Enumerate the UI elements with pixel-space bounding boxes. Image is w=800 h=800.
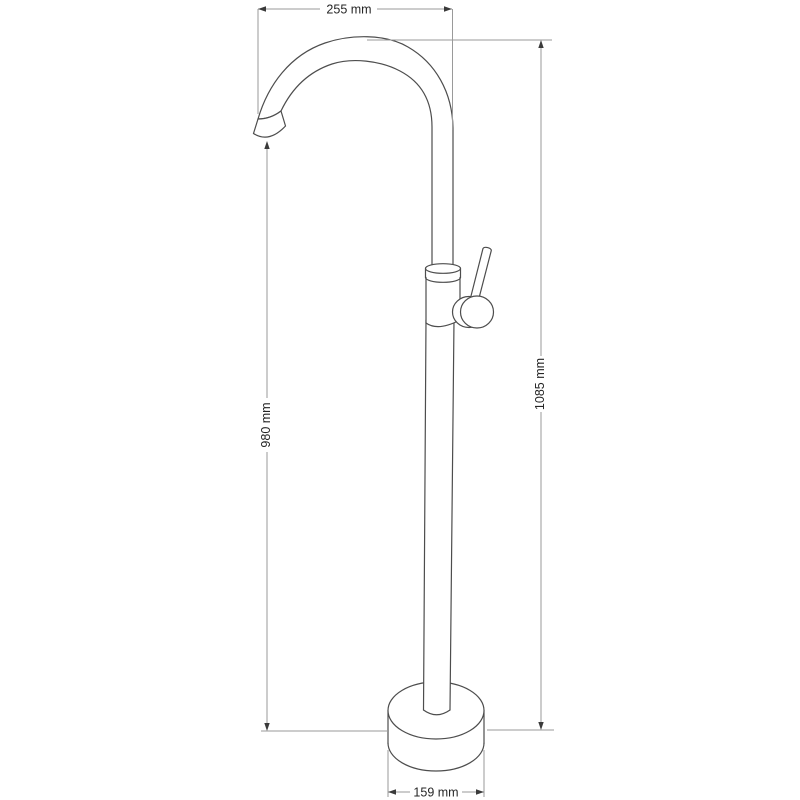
dimension-arrows <box>258 6 544 794</box>
arrow-up-icon <box>264 141 269 149</box>
dimension-labels: 255 mm 980 mm 1085 mm 159 mm <box>259 3 547 800</box>
dim-label-base-diameter: 159 mm <box>413 786 458 800</box>
dim-label-total-height: 1085 mm <box>533 358 547 410</box>
faucet-spout <box>254 37 454 268</box>
arrow-right-icon <box>444 6 452 11</box>
base-bottom-arc <box>388 743 484 771</box>
dimension-spout-height <box>261 149 388 731</box>
faucet-dimension-drawing: 255 mm 980 mm 1085 mm 159 mm <box>0 0 800 800</box>
arrow-down-icon <box>538 722 543 730</box>
dimension-lines <box>258 9 554 797</box>
arrow-down-icon <box>264 723 269 731</box>
arrow-up-icon <box>538 40 543 48</box>
dim-label-spout-height: 980 mm <box>259 402 273 447</box>
arrow-right-icon <box>476 789 484 794</box>
spout-tube <box>258 37 453 268</box>
mixer-top-flange <box>426 264 461 274</box>
arrow-left-icon <box>388 789 396 794</box>
dim-label-top-width: 255 mm <box>326 3 371 17</box>
handle-knob-face <box>461 296 494 328</box>
arrow-left-icon <box>258 6 266 11</box>
dimension-total-height <box>367 40 554 730</box>
drawing-canvas: 255 mm 980 mm 1085 mm 159 mm <box>0 0 800 800</box>
lower-pipe-fill <box>424 320 455 715</box>
handle-lever <box>471 247 492 300</box>
faucet-lower-pipe <box>424 320 455 715</box>
faucet-outline <box>254 37 494 771</box>
